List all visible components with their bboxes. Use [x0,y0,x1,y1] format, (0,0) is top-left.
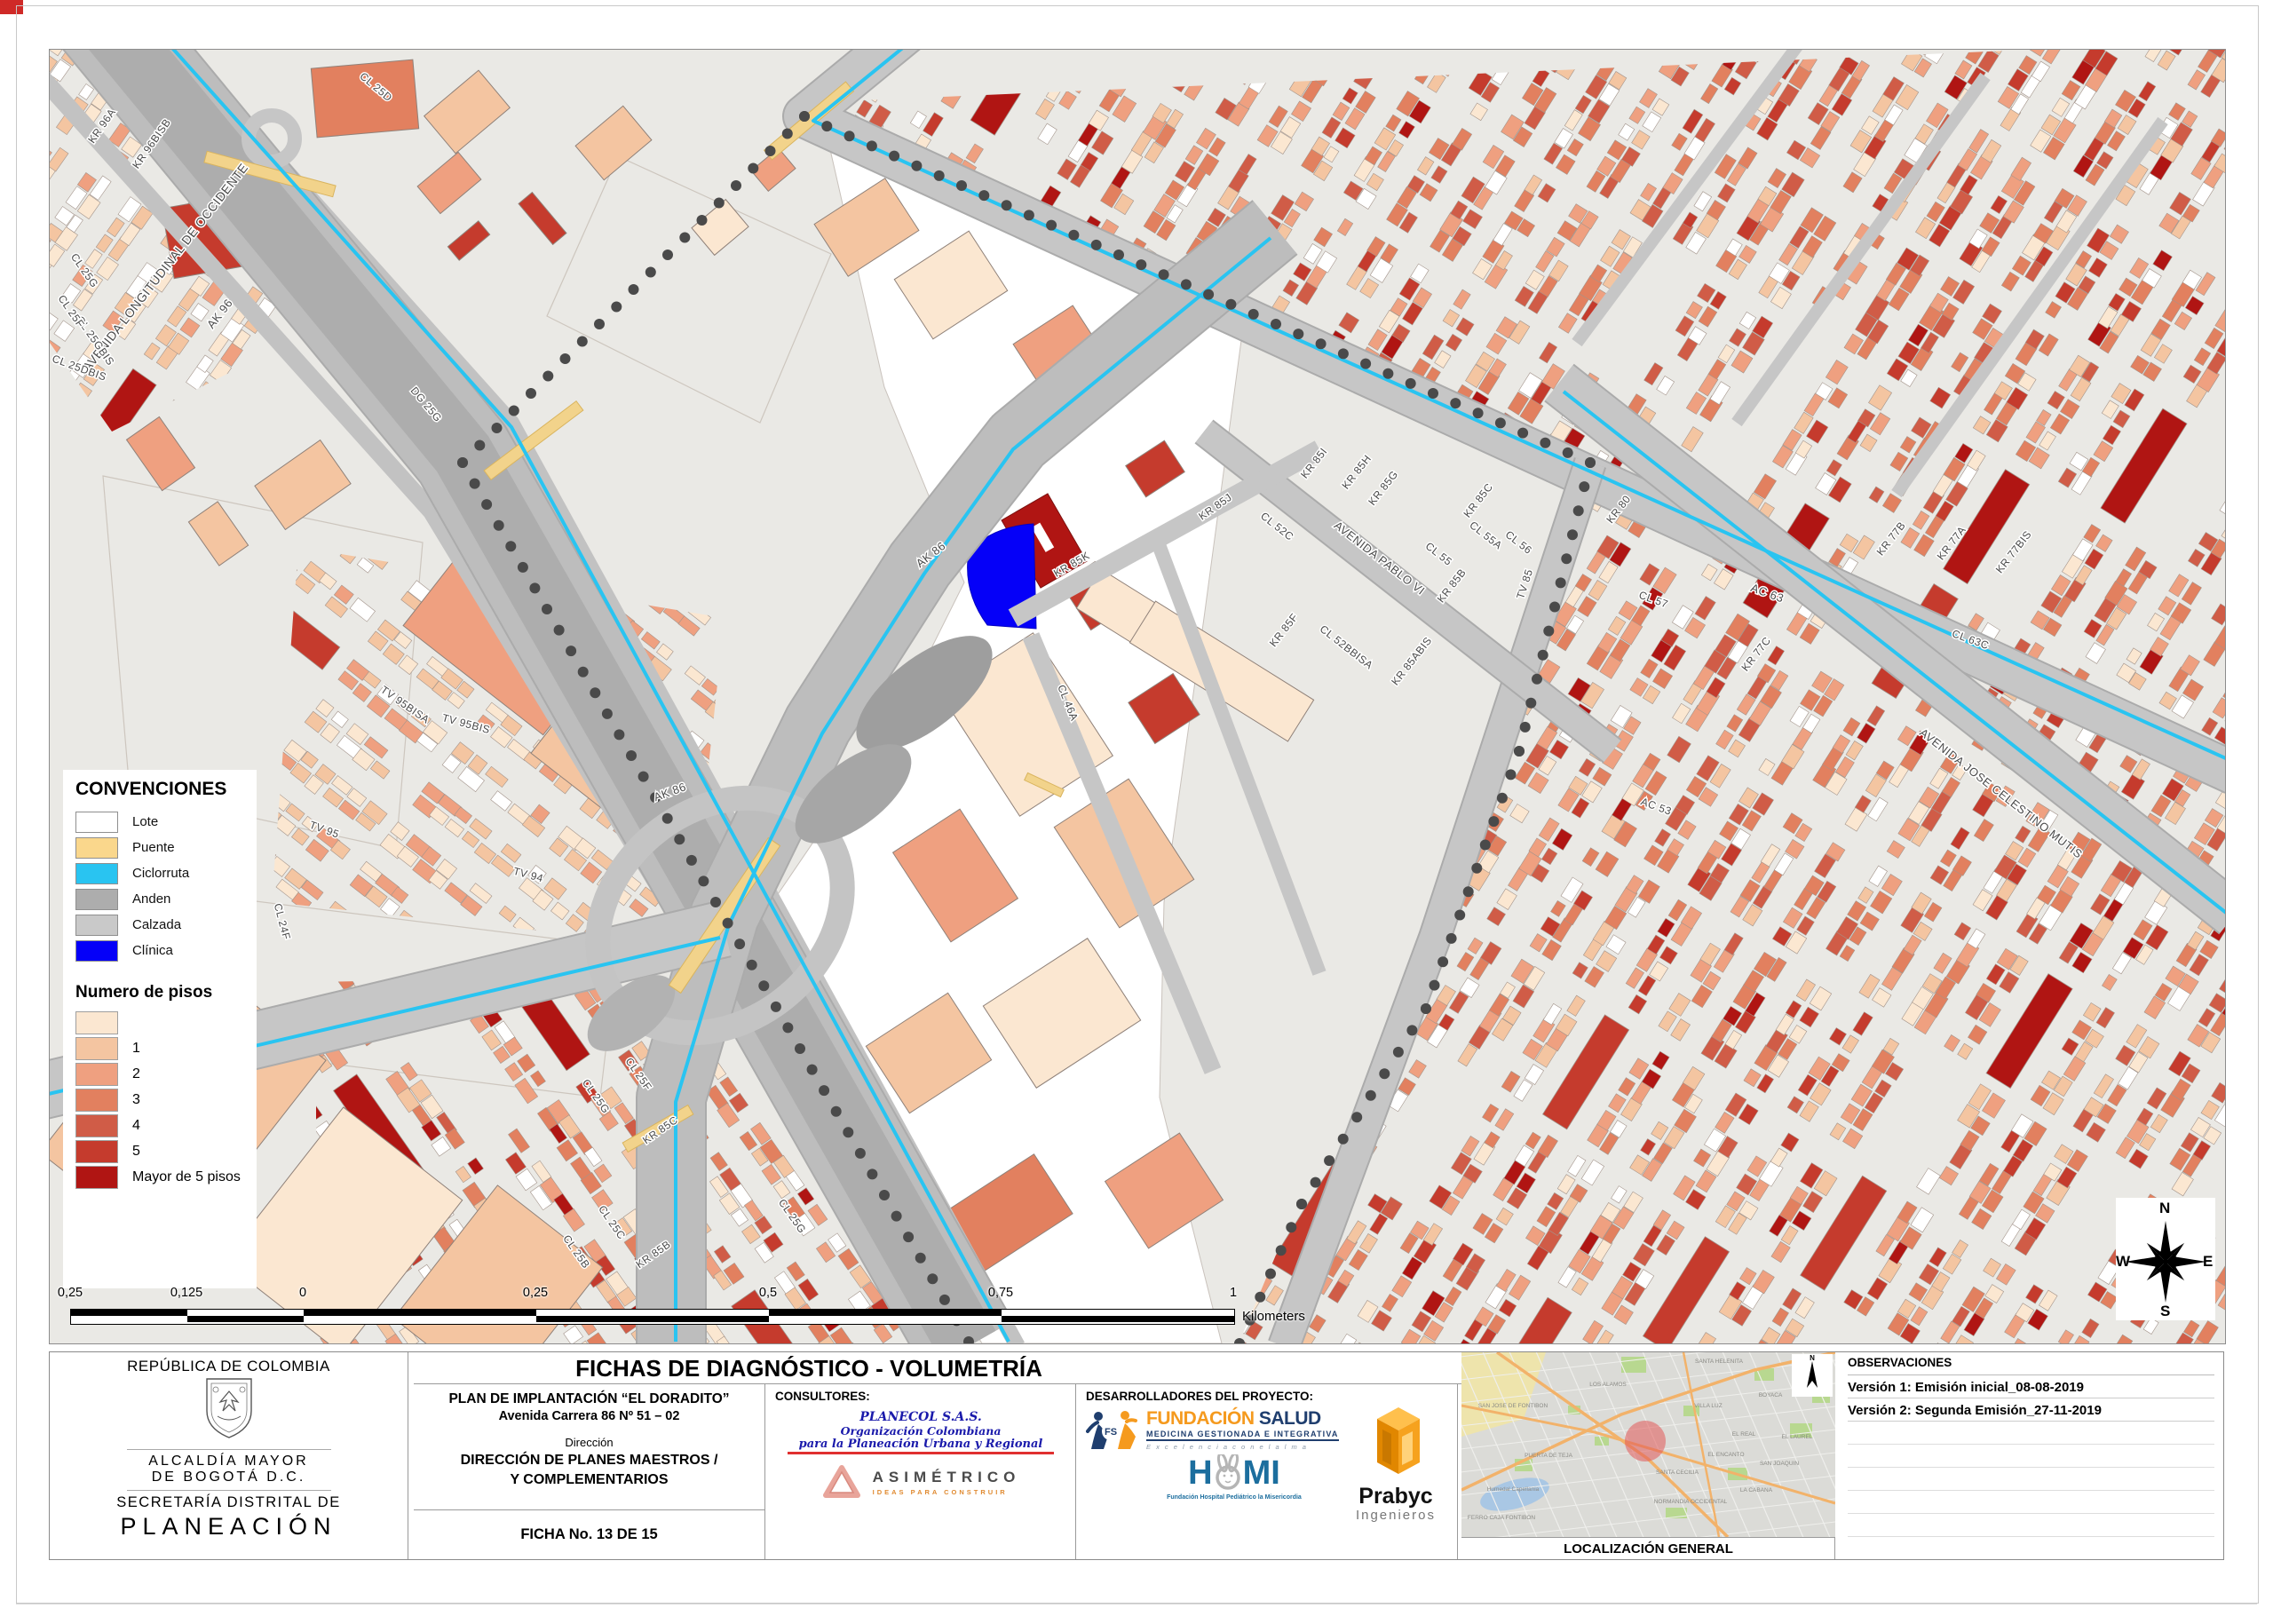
legend-item: Ciclorruta [75,860,257,886]
minimap-place-label: SAN JOSE DE FONTIBON [1478,1403,1548,1409]
legend-pisos-item [75,1010,257,1035]
observacion-empty-line [1848,1445,2214,1468]
legend-swatch [75,915,118,936]
legend-item: Anden [75,886,257,912]
planecol-logo: PLANECOL S.A.S. Organización Colombiana … [775,1410,1066,1454]
compass-e: E [2203,1253,2213,1271]
direccion-label: Dirección [414,1436,764,1449]
legend-title: CONVENCIONES [75,779,257,800]
plan-address: Avenida Carrera 86 Nº 51 – 02 [414,1409,764,1423]
prabyc-logo: Prabyc Ingenieros [1356,1403,1436,1523]
planecol-underline [788,1452,1054,1454]
minimap-place-label: SANTA HELENITA [1695,1359,1744,1365]
legend-swatch [75,1037,118,1060]
minimap-place-label: FERRO CAJA FONTIBON [1468,1515,1536,1521]
fundacion-tagline: E x c e l e n c i a c o n e l a l m a [1146,1443,1339,1451]
alcaldia-line2: DE BOGOTÁ D.C. [50,1470,408,1485]
legend-swatch [75,1011,118,1034]
observacion-empty-line [1848,1491,2214,1514]
direccion-line1: DIRECCIÓN DE PLANES MAESTROS / [414,1453,764,1469]
prabyc-sub: Ingenieros [1356,1508,1436,1523]
observacion-empty-line [1848,1422,2214,1445]
legend-pisos-item: Mayor de 5 pisos [75,1164,257,1190]
minimap-place-label: EL LAUREL [1782,1434,1813,1440]
planeacion-label: PLANEACIÓN [50,1513,408,1541]
legend-swatch [75,812,118,833]
salud-word: SALUD [1255,1408,1321,1429]
prabyc-wordmark: Prabyc [1356,1485,1436,1508]
page-frame-bottom [16,1604,2257,1604]
compass-rose: N E S W [2116,1198,2215,1320]
legend-swatch [75,940,118,962]
desarrolladores-cell: DESARROLLADORES DEL PROYECTO: FS [1077,1384,1458,1559]
minimap-place-label: EL ENCANTO [1707,1452,1744,1458]
country-label: REPÚBLICA DE COLOMBIA [50,1358,408,1375]
minimap-place-label: LA CABANA [1740,1487,1773,1493]
prabyc-building-icon [1365,1403,1427,1479]
location-minimap: SANTA HELENITASAN JOSE DE FONTIBONLOS AL… [1461,1352,1835,1537]
legend-item: Calzada [75,912,257,938]
homi-logo: H MI Fundación Hospital Pediátrico la Mi… [1113,1454,1356,1501]
localizacion-cell: SANTA HELENITASAN JOSE DE FONTIBONLOS AL… [1461,1352,1835,1559]
legend-item: Lote [75,809,257,835]
legend-items: LotePuenteCiclorrutaAndenCalzadaClínica [75,809,257,963]
minimap-place-label: NORMANDIA OCCIDENTAL [1654,1499,1728,1505]
legend-pisos-item: 1 [75,1035,257,1061]
asimetrico-triangle-icon [821,1463,862,1501]
observacion-version: Versión 1: Emisión inicial_08-08-2019 [1848,1375,2214,1398]
compass-w: W [2116,1253,2130,1271]
legend-pisos-item: 2 [75,1061,257,1087]
minimap-place-label: SAN JOAQUIN [1760,1461,1799,1467]
legend: CONVENCIONES LotePuenteCiclorrutaAndenCa… [63,770,257,1288]
legend-swatch [75,837,118,859]
minimap-place-label: PUERTA DE TEJA [1525,1453,1572,1459]
legend-swatch [75,889,118,910]
legend-item: Clínica [75,938,257,963]
svg-text:N: N [1810,1354,1815,1362]
direccion-line2: Y COMPLEMENTARIOS [414,1472,764,1488]
homi-subtitle: Fundación Hospital Pediátrico la Miseric… [1113,1494,1356,1501]
legend-pisos-item: 5 [75,1138,257,1164]
title-block: REPÚBLICA DE COLOMBIA ALCALDÍA MAYOR DE … [49,1351,2224,1560]
homi-bunny-icon [1213,1454,1243,1492]
localizacion-label: LOCALIZACIÓN GENERAL [1461,1537,1835,1560]
secretaria-line: SECRETARÍA DISTRITAL DE [50,1494,408,1511]
legend-pisos-item: 4 [75,1113,257,1138]
legend-swatch [75,1166,118,1189]
legend-swatch [75,1089,118,1112]
minimap-place-label: LOS ALAMOS [1589,1382,1627,1388]
plan-name: PLAN DE IMPLANTACIÓN “EL DORADITO” [414,1391,764,1407]
sheet-title: FICHAS DE DIAGNÓSTICO - VOLUMETRÍA [414,1352,1462,1384]
legend-swatch [75,1063,118,1086]
legend-swatch [75,1114,118,1137]
institution-cell: REPÚBLICA DE COLOMBIA ALCALDÍA MAYOR DE … [50,1352,408,1559]
asimetrico-tagline: IDEAS PARA CONSTRUIR [873,1488,1021,1496]
minimap-place-label: VILLA LUZ [1694,1403,1722,1409]
fundacion-sub: MEDICINA GESTIONADA E INTEGRATIVA [1146,1430,1339,1441]
minimap-place-label: Humedal Capellania [1487,1486,1540,1493]
desarrolladores-label: DESARROLLADORES DEL PROYECTO: [1086,1390,1448,1403]
legend-pisos-title: Numero de pisos [75,983,257,1002]
minimap-place-label: SANTA CECILIA [1656,1470,1699,1476]
minimap-place-label: BOYACA [1759,1392,1783,1398]
plan-cell: PLAN DE IMPLANTACIÓN “EL DORADITO” Aveni… [414,1384,765,1510]
legend-swatch [75,1140,118,1163]
svg-text:FS: FS [1105,1427,1117,1438]
consultores-cell: CONSULTORES: PLANECOL S.A.S. Organizació… [766,1384,1076,1559]
observacion-version: Versión 2: Segunda Emisión_27-11-2019 [1848,1398,2214,1422]
observaciones-cell: OBSERVACIONES Versión 1: Emisión inicial… [1839,1352,2223,1559]
compass-s: S [2160,1303,2170,1320]
observacion-empty-line [1848,1514,2214,1537]
fundacion-salud-logo: FS FUNDACIÓN SALUD MEDICINA GESTIONADA E… [1086,1408,1356,1454]
asimetrico-wordmark: ASIMÉTRICO [873,1469,1021,1486]
main-map: AVENIDA LONGITUDINAL DE OCCIDENTEAK 96KR… [49,49,2226,1344]
observacion-empty-line [1848,1468,2214,1491]
ficha-number: FICHA No. 13 DE 15 [414,1510,765,1559]
legend-swatch [75,863,118,884]
observaciones-label: OBSERVACIONES [1848,1356,2214,1375]
legend-pisos-item: 3 [75,1087,257,1113]
alcaldia-line1: ALCALDÍA MAYOR [50,1454,408,1470]
map-canvas: AVENIDA LONGITUDINAL DE OCCIDENTEAK 96KR… [50,50,2225,1343]
legend-pisos: 12345Mayor de 5 pisos [75,1010,257,1190]
compass-n: N [2159,1200,2170,1217]
fs-people-icon: FS [1086,1408,1141,1454]
consultores-label: CONSULTORES: [775,1390,1066,1403]
asimetrico-logo: ASIMÉTRICO IDEAS PARA CONSTRUIR [775,1463,1066,1501]
fundacion-word: FUNDACIÓN [1146,1408,1255,1429]
legend-item: Puente [75,835,257,860]
bogota-coat-of-arms [200,1375,258,1441]
minimap-place-label: EL REAL [1732,1431,1756,1438]
